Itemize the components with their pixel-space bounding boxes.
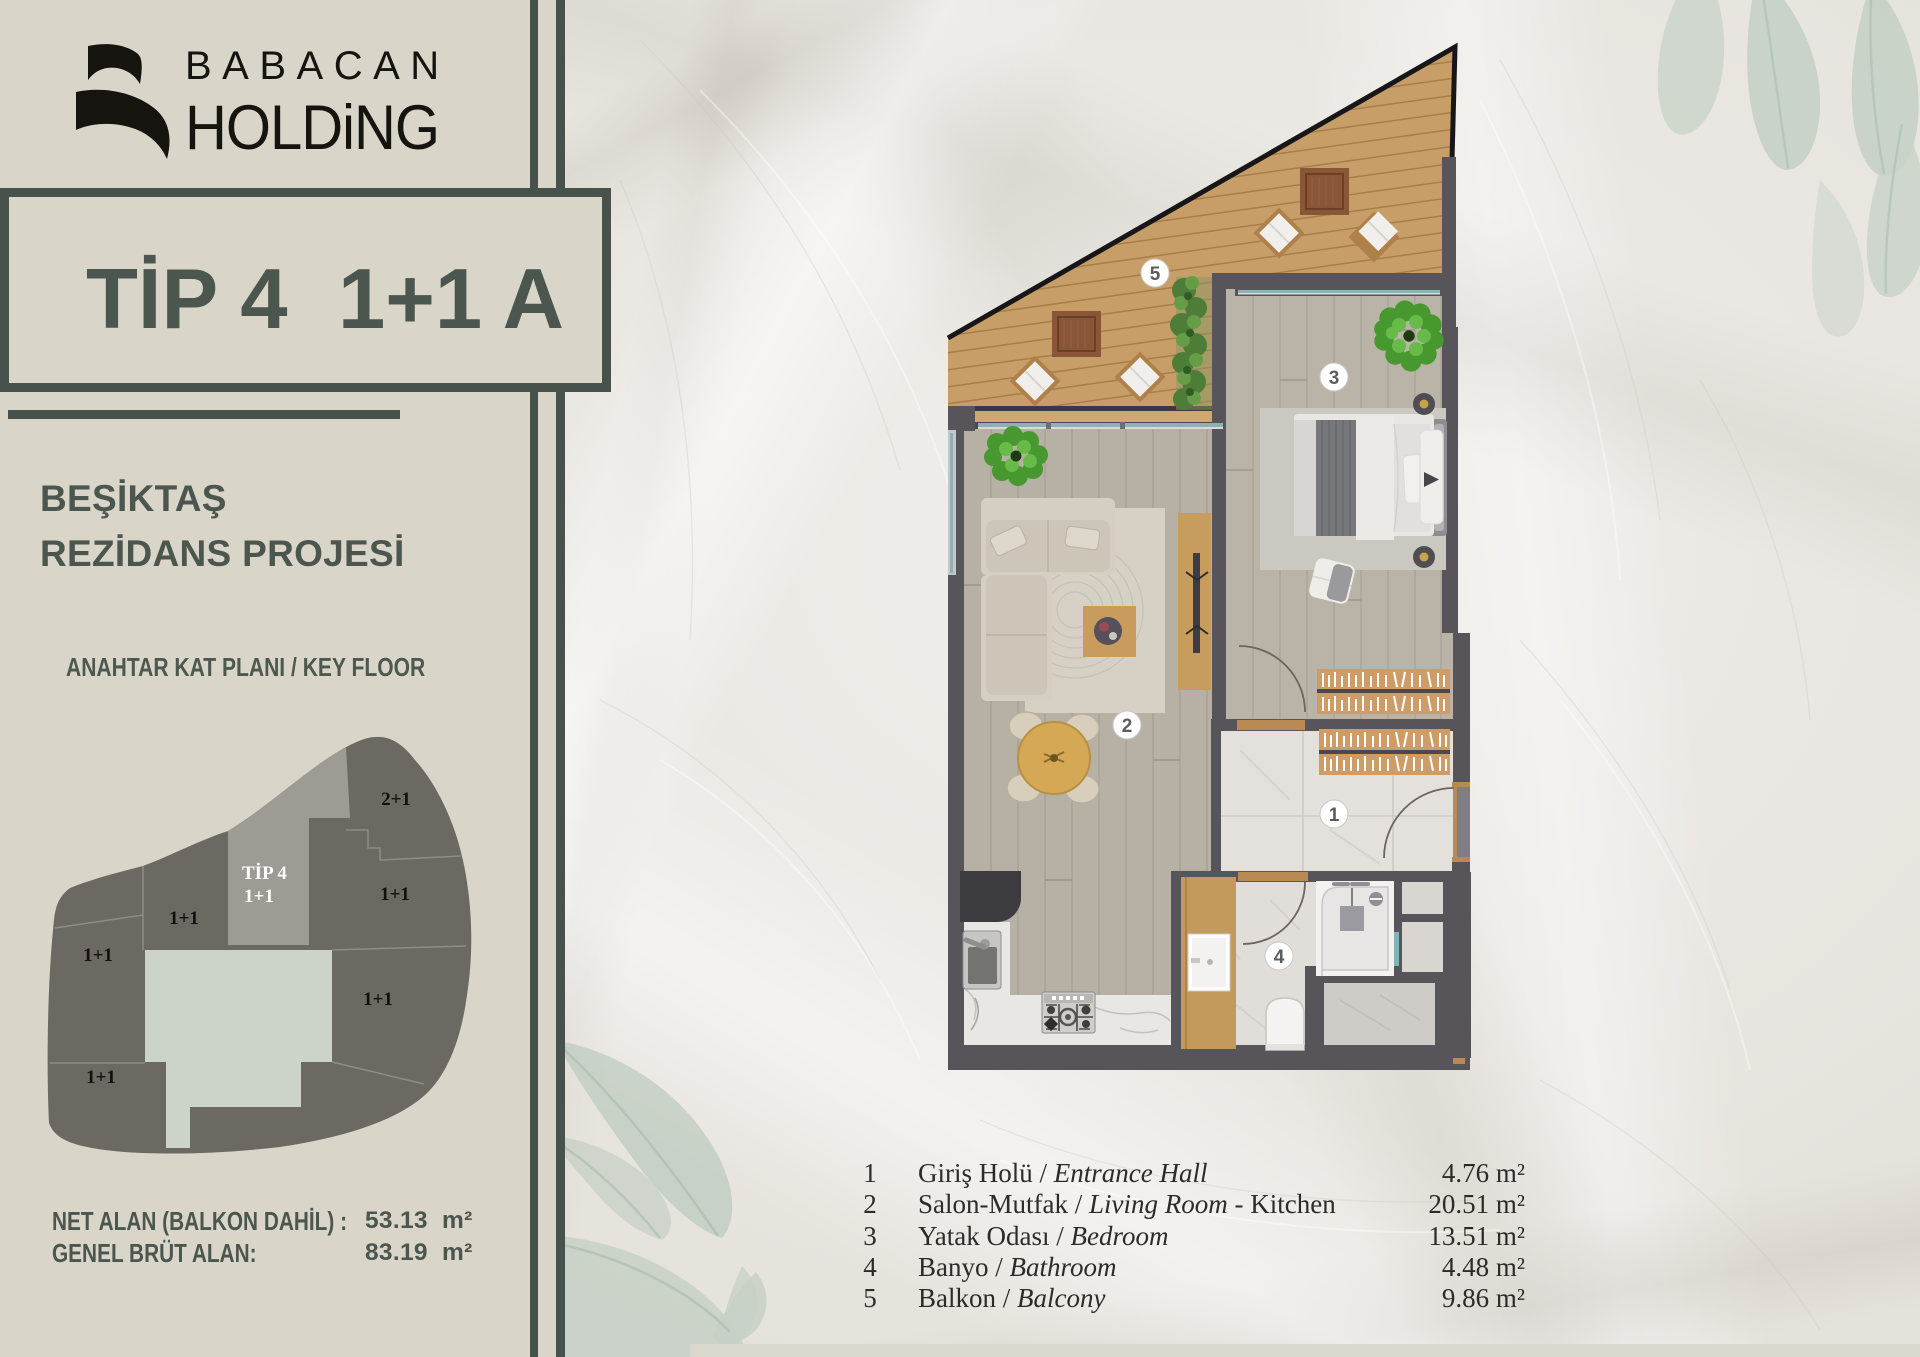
svg-text:1: 1 (1329, 805, 1340, 826)
svg-text:2+1: 2+1 (381, 789, 411, 810)
svg-text:1+1: 1+1 (169, 908, 199, 929)
svg-text:1+1: 1+1 (363, 989, 393, 1010)
svg-text:3: 3 (1329, 368, 1340, 389)
svg-text:4: 4 (1274, 947, 1285, 968)
svg-text:5: 5 (1150, 264, 1161, 285)
svg-text:2: 2 (1122, 716, 1133, 737)
svg-text:1+1: 1+1 (83, 945, 113, 966)
svg-text:1+1: 1+1 (244, 886, 274, 907)
svg-text:TİP 4: TİP 4 (242, 863, 287, 884)
svg-text:1+1: 1+1 (380, 884, 410, 905)
svg-text:1+1: 1+1 (86, 1067, 116, 1088)
